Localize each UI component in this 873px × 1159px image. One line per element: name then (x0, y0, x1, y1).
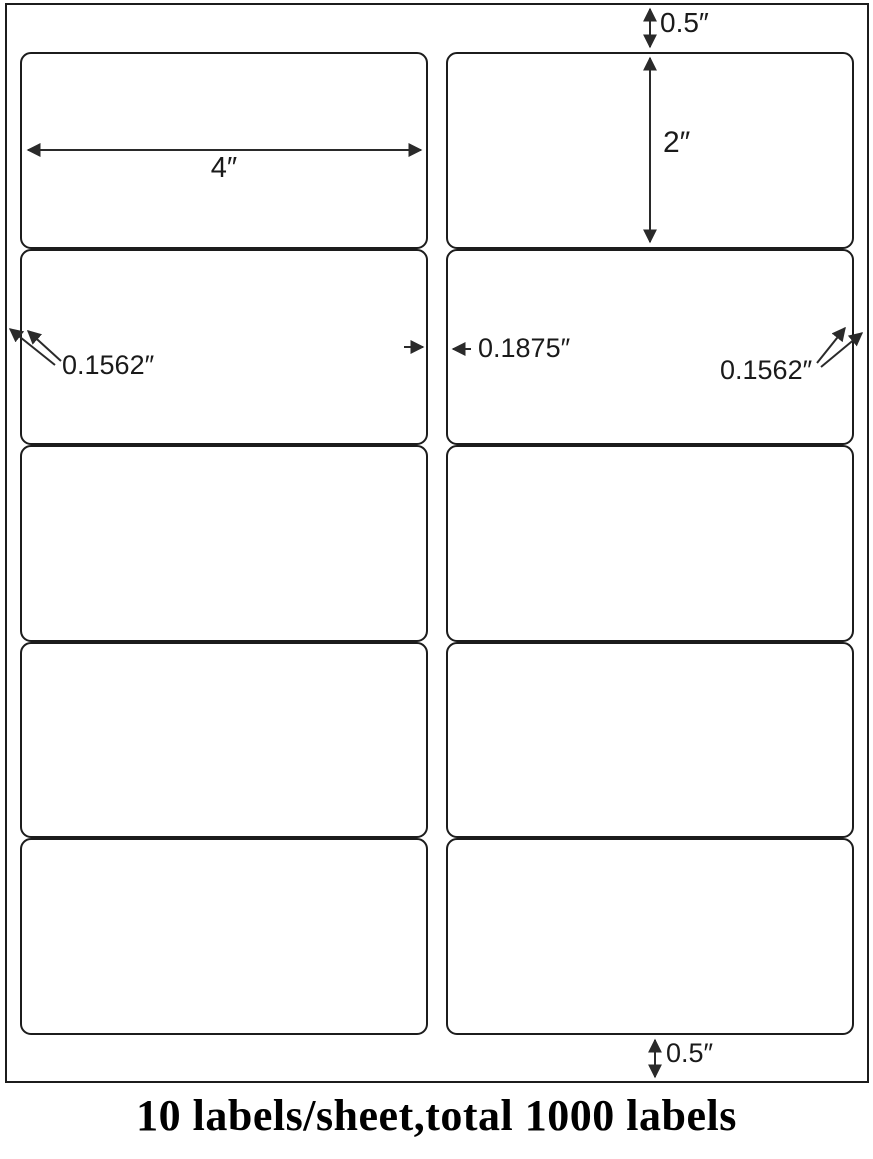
label-column-right (446, 52, 854, 1035)
label-width-value: 4″ (20, 154, 428, 183)
label-height-value: 2″ (663, 128, 690, 158)
label-cell (20, 445, 428, 642)
left-margin-value: 0.1562″ (62, 352, 154, 379)
sheet-caption: 10 labels/sheet,total 1000 labels (0, 1090, 873, 1141)
label-cell (20, 249, 428, 446)
label-grid (20, 52, 854, 1035)
label-cell (446, 52, 854, 249)
label-cell (446, 642, 854, 839)
label-cell (446, 445, 854, 642)
right-margin-value: 0.1562″ (720, 357, 812, 384)
bottom-margin-value: 0.5″ (666, 1040, 713, 1067)
label-cell (446, 838, 854, 1035)
label-cell (20, 52, 428, 249)
label-column-left (20, 52, 428, 1035)
label-cell (20, 642, 428, 839)
top-margin-value: 0.5″ (660, 9, 709, 37)
column-gap-value: 0.1875″ (478, 335, 570, 362)
label-cell (20, 838, 428, 1035)
